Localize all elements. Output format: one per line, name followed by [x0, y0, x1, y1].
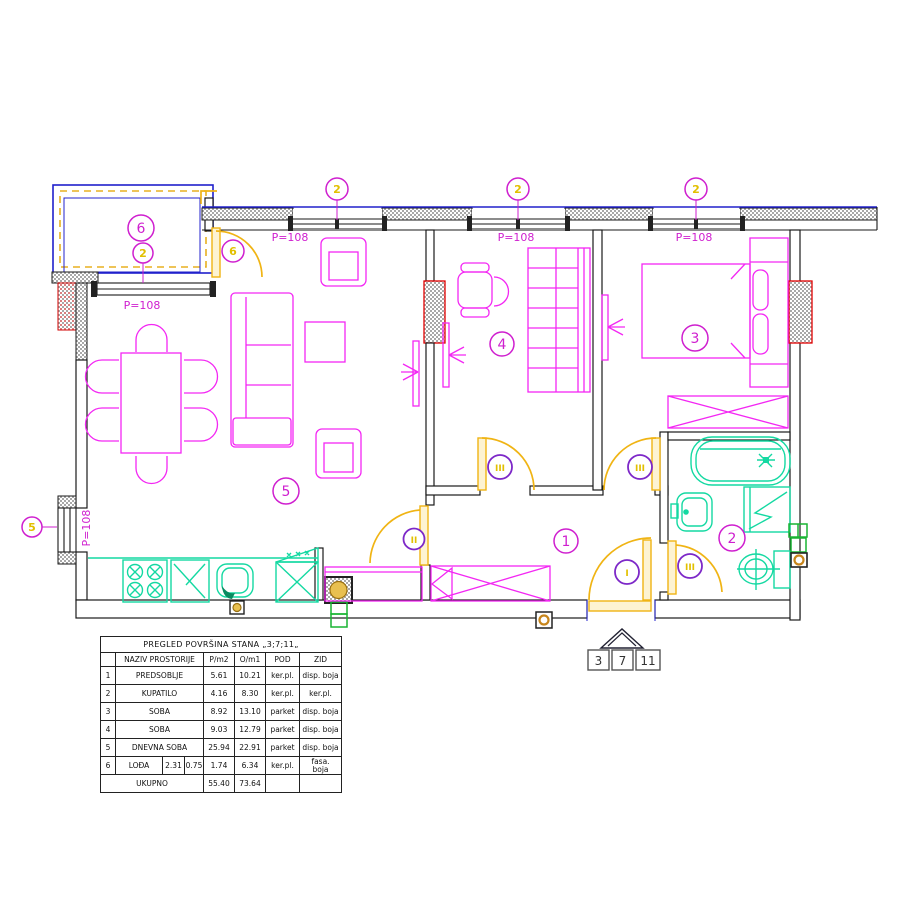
chair: [86, 360, 119, 393]
sill-height-labels: P=108 P=108 P=108 P=108 P=108: [80, 231, 712, 546]
header-name: NAZIV PROSTORIJE: [116, 653, 204, 667]
header-o: O/m1: [235, 653, 266, 667]
table-title-row: PREGLED POVRŠINA STANA „3;7;11„: [101, 637, 342, 653]
cell-zid: fasa. boja: [300, 757, 342, 775]
table-row: 6 LOĐA 2.31 0.75 1.74 6.34 ker.pl. fasa.…: [101, 757, 342, 775]
room-number: 4: [498, 337, 507, 353]
cell-total-o: 73.64: [235, 775, 266, 793]
cell-zid: disp. boja: [300, 667, 342, 685]
chair: [136, 325, 167, 353]
chair: [86, 408, 119, 441]
window-marker-number: 2: [514, 183, 522, 196]
header-pod: POD: [266, 653, 300, 667]
bedroom-wall: [593, 230, 602, 490]
cell-p: 25.94: [204, 739, 235, 757]
table-title: PREGLED POVRŠINA STANA „3;7;11„: [101, 637, 342, 653]
top-wall-segment: [382, 208, 472, 220]
cell-o: 8.30: [235, 685, 266, 703]
cell-num: 2: [101, 685, 116, 703]
room-number: 6: [137, 221, 146, 237]
top-wall-segment: [202, 208, 293, 220]
entrance-arrow-icon: [608, 633, 636, 646]
radiator-bedroom: [602, 295, 625, 360]
entrance-symbol: [601, 629, 643, 648]
doorstop-marker: [536, 612, 552, 628]
west-wall: [76, 360, 87, 508]
cell-pod: parket: [266, 721, 300, 739]
header-zid: ZID: [300, 653, 342, 667]
room-number: 2: [728, 531, 737, 547]
shelf-unit: [528, 248, 590, 392]
armchair: [321, 238, 366, 286]
cell-o: 12.79: [235, 721, 266, 739]
partition-wall: [426, 343, 434, 505]
cell-zid: disp. boja: [300, 739, 342, 757]
window-jamb: [58, 496, 76, 508]
partition-wall: [426, 230, 434, 281]
bottom-wall: [655, 600, 800, 618]
sill-label: P=108: [124, 299, 161, 312]
armchair: [316, 429, 361, 478]
loggia-corner-pillar: [58, 283, 77, 330]
entrance-arrow-icon: [601, 629, 643, 648]
header-p: P/m2: [204, 653, 235, 667]
apartment-number: 11: [640, 654, 655, 668]
table-row: 5 DNEVNA SOBA 25.94 22.91 parket disp. b…: [101, 739, 342, 757]
cell-pod: ker.pl.: [266, 685, 300, 703]
table-total-row: UKUPNO 55.40 73.64: [101, 775, 342, 793]
floor-plan-sheet: 2 2 2 2 5 6 P=108 P=108 P=108 P=108 P=10…: [0, 0, 904, 904]
shaft-east: [789, 281, 812, 343]
cell-o: 13.10: [235, 703, 266, 721]
cell-p: 5.61: [204, 667, 235, 685]
cell-pod: ker.pl.: [266, 667, 300, 685]
west-wall: [76, 552, 87, 600]
window-loggia: [91, 281, 216, 297]
chair: [184, 360, 218, 393]
door-marker-number: III: [495, 464, 505, 474]
cell-p: 8.92: [204, 703, 235, 721]
cell-name: KUPATILO: [116, 685, 204, 703]
cell-o: 6.34: [235, 757, 266, 775]
cell-pod: parket: [266, 703, 300, 721]
sofa: [231, 293, 293, 447]
door-marker-number: I: [625, 569, 628, 579]
bath-wall: [660, 592, 668, 600]
toilet: [737, 549, 790, 590]
door-marker-number: III: [685, 563, 695, 573]
bathtub: [691, 437, 790, 485]
bath-wall: [660, 432, 668, 543]
sill-label: P=108: [272, 231, 309, 244]
bedroom-wardrobe: [668, 396, 788, 428]
cell-o: 22.91: [235, 739, 266, 757]
cell-total-zid: [300, 775, 342, 793]
chair: [136, 456, 167, 484]
radiator-room4: [443, 323, 466, 387]
table-row: 4 SOBA 9.03 12.79 parket disp. boja: [101, 721, 342, 739]
windows: [58, 209, 745, 552]
drain-marker: [230, 601, 244, 614]
top-wall-segment: [740, 208, 877, 220]
chair: [184, 408, 218, 441]
bath-drain-marker: [791, 553, 807, 567]
cell-name-split: LOĐA 2.31 0.75: [116, 757, 204, 775]
pillow: [753, 314, 768, 354]
dining-set: [86, 325, 218, 484]
cell-name: SOBA: [116, 721, 204, 739]
kitchen-cabinet: [276, 562, 318, 602]
hall-wall: [426, 486, 480, 495]
table-row: 2 KUPATILO 4.16 8.30 ker.pl. ker.pl.: [101, 685, 342, 703]
kitchen-hood: [276, 548, 318, 562]
sink: [217, 564, 253, 599]
cell-pod: parket: [266, 739, 300, 757]
faucet-icon: [757, 454, 775, 467]
cell-name: SOBA: [116, 703, 204, 721]
door-marker-number: III: [635, 464, 645, 474]
window-jamb: [58, 552, 76, 564]
pillow: [753, 270, 768, 310]
apartment-numbers: 3 7 11: [588, 650, 660, 670]
cell-name: PREDSOBLJE: [116, 667, 204, 685]
door-marker-number: II: [411, 536, 418, 546]
window-marker-number: 5: [28, 521, 36, 534]
kitchen-stub-wall: [315, 548, 323, 600]
radiator-living: [401, 341, 419, 406]
header-num: [101, 653, 116, 667]
shower-unit: [744, 487, 790, 532]
shaft-center: [424, 281, 445, 343]
top-wall-segment: [565, 208, 653, 220]
double-bed: [642, 238, 788, 387]
coffee-table: [305, 322, 345, 362]
balcony-door-marker-number: 6: [229, 245, 237, 258]
cell-num: 4: [101, 721, 116, 739]
cell-zid-line2: boja: [300, 766, 341, 774]
cell-total-label: UKUPNO: [101, 775, 204, 793]
cell-p: 4.16: [204, 685, 235, 703]
room-number: 1: [562, 534, 571, 550]
sill-label: P=108: [498, 231, 535, 244]
cell-sub1: 2.31: [163, 757, 185, 774]
room-number: 3: [691, 331, 700, 347]
desk-chair: [458, 263, 509, 317]
sill-label: P=108: [676, 231, 713, 244]
cell-num: 3: [101, 703, 116, 721]
hall-wall: [530, 486, 603, 495]
cell-num: 6: [101, 757, 116, 775]
window-west: [58, 508, 76, 552]
cell-zid: disp. boja: [300, 721, 342, 739]
area-table: PREGLED POVRŠINA STANA „3;7;11„ NAZIV PR…: [100, 636, 342, 793]
area-table-wrap: PREGLED POVRŠINA STANA „3;7;11„ NAZIV PR…: [100, 636, 342, 793]
table-row: 1 PREDSOBLJE 5.61 10.21 ker.pl. disp. bo…: [101, 667, 342, 685]
hall-wardrobe: [431, 566, 550, 601]
bath-wall: [668, 432, 790, 440]
apartment-number: 7: [619, 654, 627, 668]
cell-name: LOĐA: [116, 757, 163, 774]
vent-column: [325, 577, 352, 603]
cell-p: 9.03: [204, 721, 235, 739]
apartment-number: 3: [595, 654, 603, 668]
cell-name: DNEVNA SOBA: [116, 739, 204, 757]
window-marker-number: 2: [333, 183, 341, 196]
table-header-row: NAZIV PROSTORIJE P/m2 O/m1 POD ZID: [101, 653, 342, 667]
cell-pod: ker.pl.: [266, 757, 300, 775]
cell-o: 10.21: [235, 667, 266, 685]
stove: [123, 560, 167, 602]
cell-zid: disp. boja: [300, 703, 342, 721]
cell-zid: ker.pl.: [300, 685, 342, 703]
room-number: 5: [282, 484, 291, 500]
sill-label: P=108: [80, 510, 93, 547]
washbasin: [671, 493, 712, 531]
window-marker-number: 2: [692, 183, 700, 196]
cell-sub2: 0.75: [185, 757, 203, 774]
cell-num: 5: [101, 739, 116, 757]
fridge: [171, 560, 209, 602]
cell-total-p: 55.40: [204, 775, 235, 793]
west-wall: [76, 283, 87, 360]
dining-table: [121, 353, 181, 453]
cell-p: 1.74: [204, 757, 235, 775]
window-marker-number: 2: [139, 247, 147, 260]
cell-total-pod: [266, 775, 300, 793]
table-row: 3 SOBA 8.92 13.10 parket disp. boja: [101, 703, 342, 721]
cell-num: 1: [101, 667, 116, 685]
